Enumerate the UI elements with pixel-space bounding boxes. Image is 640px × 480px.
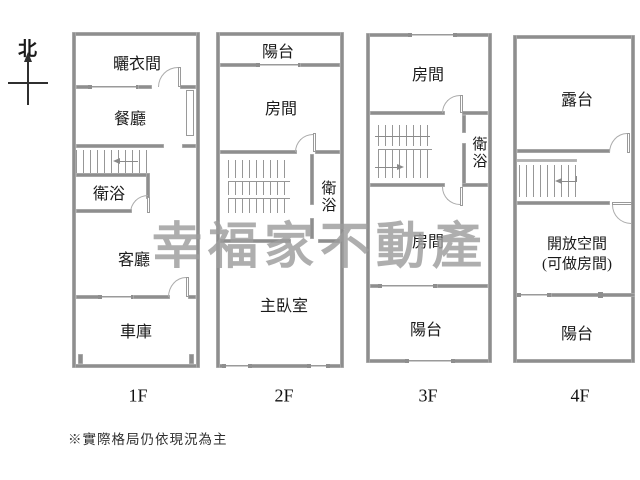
room-label: 陽台 [561,320,593,344]
door-leaf [186,277,189,297]
door-arc [442,187,460,205]
wall-segment [315,150,340,154]
wall-segment [76,144,164,148]
wall-segment [72,32,76,368]
door-leaf [460,187,463,206]
window-cap [451,359,455,363]
floorplan-1f: 曬衣間 餐廳 衛浴 客廳 車庫 [72,32,200,368]
wall-segment [370,111,445,115]
door-leaf [313,133,316,152]
window [258,63,300,67]
wall-segment [437,284,488,288]
window-cap [256,63,260,67]
door-panel [186,90,194,136]
window-cap [378,284,382,288]
door-leaf [460,95,463,113]
window-cap [307,364,311,368]
window-cap [598,292,603,298]
watermark-text: 幸福家不動產 [152,206,488,278]
stair-direction-line [576,176,577,182]
door-arc [295,134,313,152]
floor-label-3f: 3F [418,386,437,407]
door-arc [168,277,186,297]
room-label: 陽台 [410,316,442,340]
stair-landing [228,195,290,199]
wall-segment [310,154,314,205]
room-label: 房間 [265,95,297,119]
door-arc [609,133,627,153]
wall-segment [220,63,258,67]
stair-landing [228,178,290,182]
wall-segment [216,32,344,36]
window-cap [405,359,409,363]
footnote-text: ※實際格局仍依現況為主 [68,428,228,448]
room-label: (可做房間) [542,253,612,274]
window-cap [88,85,92,89]
room-label: 客廳 [118,246,150,270]
wall-segment [517,201,610,205]
room-label: 開放空間 [547,233,607,254]
wall-segment [76,209,132,213]
stair-arrow-icon [113,158,120,164]
wall-segment [631,35,635,363]
stairs [378,125,432,178]
wall-segment [366,33,370,363]
wall-segment [216,32,220,368]
wall-segment [488,33,492,363]
wall-segment [462,115,466,133]
room-label: 露台 [561,86,593,110]
garage-post [78,354,83,364]
wall-segment [180,85,196,89]
door-arc [442,95,460,113]
wall-segment [517,149,610,153]
window [90,85,138,89]
floorplan-canvas: 北 [0,0,640,480]
stair-landing-edge [517,159,577,162]
wall-segment [300,63,340,67]
window [519,293,549,297]
wall-segment [72,32,200,36]
window-cap [222,364,226,368]
window [380,284,435,288]
room-label: 衛浴 [469,136,490,170]
floor-label-4f: 4F [570,386,589,407]
floorplan-2f: 陽台 房間 衛浴 主臥室 [216,32,344,368]
wall-segment [72,364,200,368]
wall-segment [513,35,635,39]
stair-direction-line [375,136,430,137]
floor-label-2f: 2F [274,386,293,407]
wall-segment [196,32,200,368]
room-label: 車庫 [120,318,152,342]
stair-direction-line [118,161,138,162]
wall-segment [551,293,635,297]
stair-arrow-icon [555,178,562,184]
door-arc [612,205,631,224]
room-label: 曬衣間 [113,50,161,74]
garage-post [189,354,194,364]
wall-segment [76,295,100,299]
stair-landing [378,146,432,150]
wall-segment [220,150,297,154]
wall-segment [188,295,196,299]
window [224,364,250,368]
window-cap [248,364,252,368]
room-label: 餐廳 [114,105,146,129]
door-leaf [627,133,630,153]
window [100,295,133,299]
room-label: 主臥室 [260,292,308,316]
wall-segment [462,143,466,187]
room-label: 房間 [412,61,444,85]
door-arc [130,195,148,213]
window-cap [517,293,521,297]
window [407,359,451,363]
window-cap [453,33,457,37]
north-indicator: 北 [4,34,54,109]
window-cap [408,33,412,37]
room-label: 陽台 [262,38,294,62]
wall-segment [182,144,196,148]
window-cap [98,295,102,299]
window-cap [326,364,330,368]
door-leaf [178,67,181,87]
wall-segment [340,32,344,368]
floorplan-3f: 房間 衛浴 房間 陽台 [366,33,492,363]
wall-segment [370,183,445,187]
wall-segment [76,173,150,177]
wall-segment [462,183,488,187]
floorplan-4f: 露台 開放空間 (可做房間) 陽台 [513,35,635,363]
wall-segment [513,359,635,363]
window [410,33,453,37]
north-cross-line [8,82,48,84]
room-label: 衛浴 [93,180,125,204]
stair-direction-line [560,181,577,182]
stair-direction-line [375,167,397,168]
wall-segment [513,35,517,363]
floor-label-1f: 1F [128,386,147,407]
stair-arrow-icon [397,164,404,170]
wall-segment [138,85,152,89]
wall-segment [133,295,170,299]
